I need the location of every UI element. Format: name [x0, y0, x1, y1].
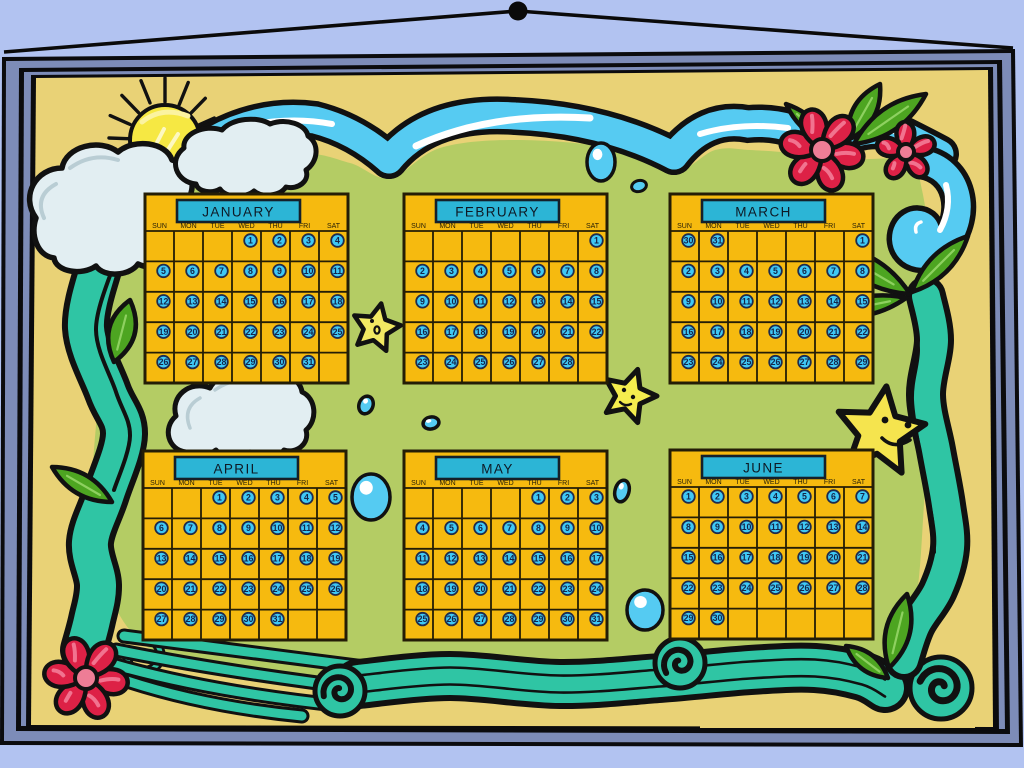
- svg-text:THU: THU: [527, 223, 541, 230]
- svg-text:TUE: TUE: [470, 480, 484, 487]
- svg-text:22: 22: [684, 583, 694, 593]
- svg-text:9: 9: [715, 522, 720, 532]
- svg-text:SAT: SAT: [586, 480, 600, 487]
- svg-text:24: 24: [713, 357, 723, 367]
- svg-text:21: 21: [829, 327, 839, 337]
- svg-text:2: 2: [420, 266, 425, 276]
- svg-text:8: 8: [594, 266, 599, 276]
- svg-text:10: 10: [742, 522, 752, 532]
- svg-text:5: 5: [507, 266, 512, 276]
- svg-text:14: 14: [858, 522, 868, 532]
- svg-text:31: 31: [592, 614, 602, 624]
- svg-text:13: 13: [534, 296, 544, 306]
- svg-text:25: 25: [771, 583, 781, 593]
- svg-text:11: 11: [333, 266, 342, 276]
- svg-text:16: 16: [275, 296, 285, 306]
- svg-text:12: 12: [800, 522, 810, 532]
- svg-text:24: 24: [273, 584, 283, 594]
- svg-text:6: 6: [190, 266, 195, 276]
- svg-text:18: 18: [302, 553, 312, 563]
- svg-text:19: 19: [800, 552, 810, 562]
- svg-text:28: 28: [186, 614, 196, 624]
- svg-text:WED: WED: [497, 480, 513, 487]
- svg-text:4: 4: [335, 236, 340, 246]
- svg-text:15: 15: [684, 552, 694, 562]
- svg-text:17: 17: [713, 327, 723, 337]
- svg-text:15: 15: [246, 296, 256, 306]
- svg-text:MON: MON: [180, 223, 196, 230]
- svg-text:TUE: TUE: [736, 223, 750, 230]
- svg-text:25: 25: [333, 327, 343, 337]
- svg-text:JANUARY: JANUARY: [202, 205, 275, 220]
- svg-text:3: 3: [744, 492, 749, 502]
- svg-text:3: 3: [594, 493, 599, 503]
- svg-text:21: 21: [858, 552, 868, 562]
- svg-text:16: 16: [713, 552, 723, 562]
- svg-text:26: 26: [331, 584, 341, 594]
- svg-text:15: 15: [215, 553, 225, 563]
- svg-text:23: 23: [418, 357, 428, 367]
- svg-text:20: 20: [800, 327, 810, 337]
- svg-text:24: 24: [742, 583, 752, 593]
- svg-text:8: 8: [536, 523, 541, 533]
- svg-text:9: 9: [420, 296, 425, 306]
- svg-text:6: 6: [478, 523, 483, 533]
- svg-text:6: 6: [159, 523, 164, 533]
- svg-text:SAT: SAT: [586, 223, 600, 230]
- svg-text:24: 24: [447, 357, 457, 367]
- svg-text:FEBRUARY: FEBRUARY: [455, 205, 539, 220]
- svg-text:5: 5: [773, 266, 778, 276]
- svg-text:23: 23: [713, 583, 723, 593]
- svg-text:10: 10: [447, 296, 457, 306]
- svg-text:7: 7: [565, 266, 570, 276]
- svg-text:16: 16: [684, 327, 694, 337]
- svg-text:26: 26: [447, 614, 457, 624]
- svg-text:9: 9: [565, 523, 570, 533]
- svg-text:25: 25: [302, 584, 312, 594]
- svg-text:1: 1: [536, 493, 541, 503]
- svg-text:18: 18: [742, 327, 752, 337]
- svg-text:THU: THU: [527, 480, 541, 487]
- svg-text:THU: THU: [793, 223, 807, 230]
- svg-text:3: 3: [275, 493, 280, 503]
- svg-text:19: 19: [505, 327, 515, 337]
- svg-text:MAY: MAY: [481, 462, 513, 477]
- svg-text:MON: MON: [439, 480, 455, 487]
- svg-text:11: 11: [302, 523, 311, 533]
- svg-text:5: 5: [161, 266, 166, 276]
- svg-text:22: 22: [215, 584, 225, 594]
- svg-text:14: 14: [563, 296, 573, 306]
- svg-text:12: 12: [771, 296, 781, 306]
- svg-text:TUE: TUE: [211, 223, 225, 230]
- svg-text:12: 12: [447, 553, 457, 563]
- svg-text:8: 8: [248, 266, 253, 276]
- svg-text:SAT: SAT: [852, 479, 866, 486]
- svg-text:MON: MON: [178, 480, 194, 487]
- svg-text:25: 25: [418, 614, 428, 624]
- svg-text:1: 1: [860, 236, 865, 246]
- svg-text:10: 10: [273, 523, 283, 533]
- svg-text:9: 9: [277, 266, 282, 276]
- svg-text:24: 24: [304, 327, 314, 337]
- svg-text:MON: MON: [439, 223, 455, 230]
- svg-text:19: 19: [771, 327, 781, 337]
- svg-text:20: 20: [476, 584, 486, 594]
- svg-text:29: 29: [858, 357, 868, 367]
- svg-text:17: 17: [592, 553, 602, 563]
- svg-text:13: 13: [476, 553, 486, 563]
- svg-text:31: 31: [304, 357, 314, 367]
- svg-text:FRI: FRI: [824, 223, 835, 230]
- svg-text:7: 7: [831, 266, 836, 276]
- svg-text:22: 22: [534, 584, 544, 594]
- svg-text:3: 3: [449, 266, 454, 276]
- svg-text:THU: THU: [268, 223, 282, 230]
- svg-text:5: 5: [333, 493, 338, 503]
- svg-text:1: 1: [217, 493, 222, 503]
- svg-text:5: 5: [802, 492, 807, 502]
- svg-text:2: 2: [565, 493, 570, 503]
- svg-text:1: 1: [594, 236, 599, 246]
- svg-text:2: 2: [715, 492, 720, 502]
- svg-text:22: 22: [592, 327, 602, 337]
- svg-text:21: 21: [563, 327, 573, 337]
- svg-text:WED: WED: [763, 223, 779, 230]
- svg-text:SUN: SUN: [677, 479, 692, 486]
- svg-text:13: 13: [829, 522, 839, 532]
- svg-text:25: 25: [742, 357, 752, 367]
- svg-text:SUN: SUN: [411, 223, 426, 230]
- svg-text:2: 2: [246, 493, 251, 503]
- svg-text:16: 16: [563, 553, 573, 563]
- svg-text:15: 15: [858, 296, 868, 306]
- svg-text:8: 8: [217, 523, 222, 533]
- svg-text:7: 7: [219, 266, 224, 276]
- svg-text:18: 18: [418, 584, 428, 594]
- svg-text:9: 9: [686, 296, 691, 306]
- svg-text:24: 24: [592, 584, 602, 594]
- svg-text:8: 8: [860, 266, 865, 276]
- svg-text:2: 2: [686, 266, 691, 276]
- svg-text:11: 11: [771, 522, 780, 532]
- svg-text:27: 27: [534, 357, 544, 367]
- svg-text:2: 2: [277, 236, 282, 246]
- svg-text:31: 31: [273, 614, 283, 624]
- svg-text:1: 1: [248, 236, 253, 246]
- svg-text:29: 29: [246, 357, 256, 367]
- svg-text:9: 9: [246, 523, 251, 533]
- svg-text:FRI: FRI: [558, 223, 569, 230]
- svg-text:SUN: SUN: [152, 223, 167, 230]
- svg-text:WED: WED: [497, 223, 513, 230]
- svg-text:11: 11: [476, 296, 485, 306]
- svg-text:14: 14: [829, 296, 839, 306]
- svg-text:11: 11: [742, 296, 751, 306]
- svg-text:12: 12: [159, 296, 169, 306]
- svg-text:26: 26: [800, 583, 810, 593]
- svg-text:3: 3: [306, 236, 311, 246]
- svg-text:21: 21: [186, 584, 196, 594]
- svg-text:7: 7: [507, 523, 512, 533]
- svg-text:14: 14: [505, 553, 515, 563]
- svg-text:15: 15: [534, 553, 544, 563]
- svg-text:17: 17: [273, 553, 283, 563]
- svg-text:THU: THU: [793, 479, 807, 486]
- svg-text:1: 1: [686, 492, 691, 502]
- svg-text:14: 14: [217, 296, 227, 306]
- svg-text:WED: WED: [238, 223, 254, 230]
- svg-text:27: 27: [800, 357, 810, 367]
- svg-text:28: 28: [505, 614, 515, 624]
- svg-text:15: 15: [592, 296, 602, 306]
- svg-text:6: 6: [831, 492, 836, 502]
- svg-text:FRI: FRI: [824, 479, 835, 486]
- svg-text:13: 13: [800, 296, 810, 306]
- svg-text:22: 22: [858, 327, 868, 337]
- svg-text:SUN: SUN: [411, 480, 426, 487]
- svg-text:FRI: FRI: [299, 223, 310, 230]
- svg-text:17: 17: [304, 296, 314, 306]
- svg-text:MON: MON: [705, 479, 721, 486]
- svg-text:SUN: SUN: [150, 480, 165, 487]
- svg-text:20: 20: [188, 327, 198, 337]
- svg-text:26: 26: [505, 357, 515, 367]
- svg-text:18: 18: [333, 296, 343, 306]
- svg-text:23: 23: [244, 584, 254, 594]
- svg-text:25: 25: [476, 357, 486, 367]
- svg-text:SAT: SAT: [327, 223, 341, 230]
- svg-text:JUNE: JUNE: [743, 461, 784, 476]
- svg-text:12: 12: [331, 523, 341, 533]
- svg-text:23: 23: [563, 584, 573, 594]
- svg-text:30: 30: [684, 236, 694, 246]
- svg-text:4: 4: [304, 493, 309, 503]
- svg-text:TUE: TUE: [736, 479, 750, 486]
- svg-text:17: 17: [742, 552, 752, 562]
- svg-text:FRI: FRI: [558, 480, 569, 487]
- svg-text:27: 27: [829, 583, 839, 593]
- svg-text:28: 28: [858, 583, 868, 593]
- svg-text:FRI: FRI: [297, 480, 308, 487]
- svg-text:17: 17: [447, 327, 457, 337]
- svg-text:10: 10: [304, 266, 314, 276]
- svg-text:29: 29: [534, 614, 544, 624]
- svg-text:8: 8: [686, 522, 691, 532]
- svg-text:27: 27: [157, 614, 167, 624]
- svg-text:10: 10: [713, 296, 723, 306]
- svg-text:28: 28: [217, 357, 227, 367]
- svg-text:WED: WED: [763, 479, 779, 486]
- svg-text:4: 4: [478, 266, 483, 276]
- svg-text:31: 31: [713, 236, 723, 246]
- svg-text:30: 30: [244, 614, 254, 624]
- svg-text:WED: WED: [236, 480, 252, 487]
- svg-text:26: 26: [159, 357, 169, 367]
- svg-text:TUE: TUE: [470, 223, 484, 230]
- svg-text:29: 29: [215, 614, 225, 624]
- svg-text:3: 3: [715, 266, 720, 276]
- svg-text:APRIL: APRIL: [213, 462, 259, 477]
- svg-text:MARCH: MARCH: [735, 205, 792, 220]
- svg-text:20: 20: [534, 327, 544, 337]
- svg-text:29: 29: [684, 613, 694, 623]
- svg-text:22: 22: [246, 327, 256, 337]
- svg-text:30: 30: [713, 613, 723, 623]
- svg-text:13: 13: [188, 296, 198, 306]
- svg-text:21: 21: [505, 584, 515, 594]
- svg-text:23: 23: [275, 327, 285, 337]
- svg-text:20: 20: [829, 552, 839, 562]
- svg-text:30: 30: [275, 357, 285, 367]
- svg-text:18: 18: [771, 552, 781, 562]
- svg-text:18: 18: [476, 327, 486, 337]
- svg-text:26: 26: [771, 357, 781, 367]
- svg-text:19: 19: [159, 327, 169, 337]
- svg-text:7: 7: [860, 492, 865, 502]
- svg-text:28: 28: [563, 357, 573, 367]
- svg-text:16: 16: [418, 327, 428, 337]
- svg-text:12: 12: [505, 296, 515, 306]
- svg-text:13: 13: [157, 553, 167, 563]
- svg-text:27: 27: [188, 357, 198, 367]
- svg-text:MON: MON: [705, 223, 721, 230]
- svg-text:11: 11: [418, 553, 427, 563]
- svg-text:5: 5: [449, 523, 454, 533]
- svg-text:SAT: SAT: [852, 223, 866, 230]
- svg-text:7: 7: [188, 523, 193, 533]
- svg-text:10: 10: [592, 523, 602, 533]
- svg-text:27: 27: [476, 614, 486, 624]
- svg-text:TUE: TUE: [209, 480, 223, 487]
- svg-text:SUN: SUN: [677, 223, 692, 230]
- svg-text:6: 6: [536, 266, 541, 276]
- svg-text:19: 19: [331, 553, 341, 563]
- svg-text:4: 4: [420, 523, 425, 533]
- svg-text:30: 30: [563, 614, 573, 624]
- svg-text:23: 23: [684, 357, 694, 367]
- svg-text:16: 16: [244, 553, 254, 563]
- svg-text:SAT: SAT: [325, 480, 339, 487]
- svg-text:21: 21: [217, 327, 227, 337]
- svg-text:THU: THU: [266, 480, 280, 487]
- svg-text:4: 4: [744, 266, 749, 276]
- svg-text:14: 14: [186, 553, 196, 563]
- svg-text:4: 4: [773, 492, 778, 502]
- svg-text:19: 19: [447, 584, 457, 594]
- svg-text:6: 6: [802, 266, 807, 276]
- svg-text:20: 20: [157, 584, 167, 594]
- svg-text:28: 28: [829, 357, 839, 367]
